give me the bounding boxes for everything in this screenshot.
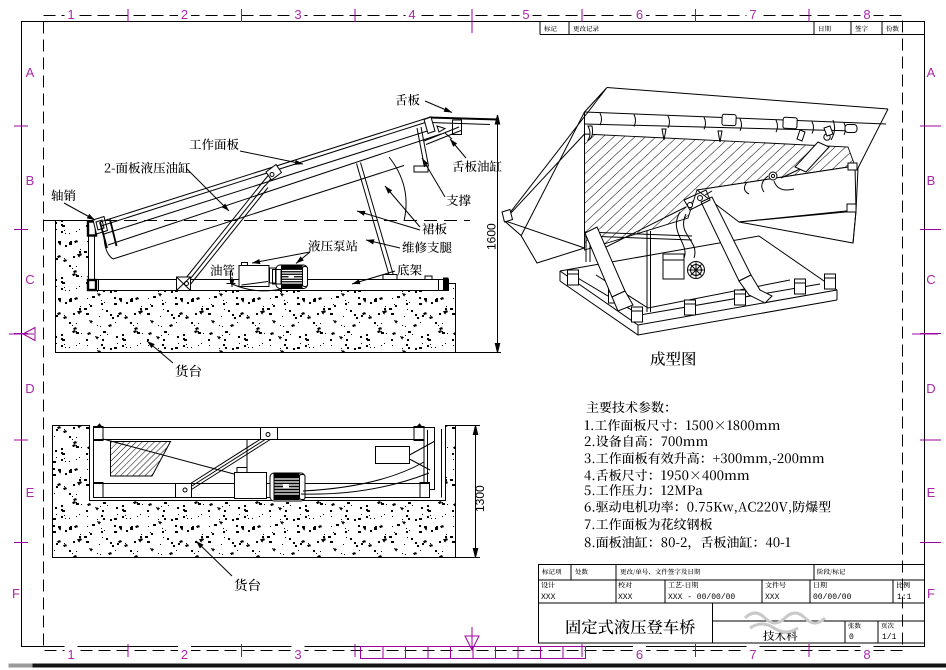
svg-text:A: A: [26, 65, 35, 80]
svg-text:00/00/00: 00/00/00: [813, 593, 852, 602]
svg-text:XXX - 00/00/00: XXX - 00/00/00: [668, 593, 735, 602]
svg-text:3: 3: [294, 7, 301, 22]
svg-text:XXX: XXX: [765, 593, 780, 602]
svg-text:5: 5: [522, 7, 529, 22]
svg-text:4: 4: [408, 7, 415, 22]
svg-text:XXX: XXX: [541, 593, 556, 602]
svg-text:1:1: 1:1: [897, 593, 912, 602]
svg-text:C: C: [25, 272, 34, 287]
svg-text:1300: 1300: [473, 485, 487, 512]
svg-text:E: E: [26, 485, 35, 500]
svg-text:7: 7: [749, 647, 756, 662]
svg-text:E: E: [927, 485, 936, 500]
svg-text:B: B: [927, 173, 936, 188]
svg-text:2: 2: [181, 7, 188, 22]
svg-text:6: 6: [636, 647, 643, 662]
svg-text:8: 8: [863, 7, 870, 22]
svg-text:F: F: [927, 586, 935, 601]
svg-text:B: B: [26, 173, 35, 188]
svg-text:XXX: XXX: [618, 593, 633, 602]
svg-text:C: C: [926, 272, 935, 287]
svg-text:1600: 1600: [485, 223, 499, 250]
svg-text:1/1: 1/1: [882, 633, 897, 642]
svg-text:A: A: [927, 65, 936, 80]
svg-text:0: 0: [849, 633, 854, 642]
svg-text:D: D: [25, 381, 34, 396]
svg-text:F: F: [12, 586, 20, 601]
svg-text:7: 7: [749, 7, 756, 22]
svg-text:1: 1: [67, 7, 74, 22]
svg-text:D: D: [926, 381, 935, 396]
svg-text:6: 6: [636, 7, 643, 22]
svg-text:8: 8: [863, 647, 870, 662]
svg-text:1: 1: [67, 647, 74, 662]
svg-text:2: 2: [181, 647, 188, 662]
svg-text:3: 3: [294, 647, 301, 662]
